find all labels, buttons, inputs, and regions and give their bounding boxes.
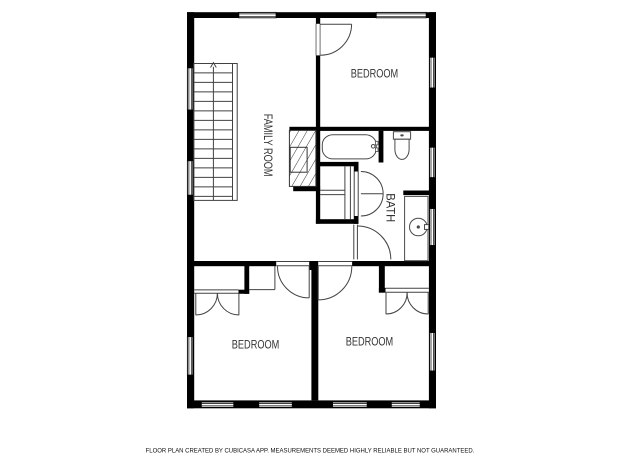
svg-text:BATH: BATH [383, 193, 395, 222]
svg-text:FAMILY ROOM: FAMILY ROOM [261, 114, 273, 177]
svg-text:BEDROOM: BEDROOM [232, 339, 279, 351]
svg-text:FLOOR PLAN CREATED BY CUBICASA: FLOOR PLAN CREATED BY CUBICASA APP. MEAS… [146, 447, 475, 454]
svg-text:BEDROOM: BEDROOM [351, 69, 399, 81]
svg-text:BEDROOM: BEDROOM [346, 337, 394, 349]
